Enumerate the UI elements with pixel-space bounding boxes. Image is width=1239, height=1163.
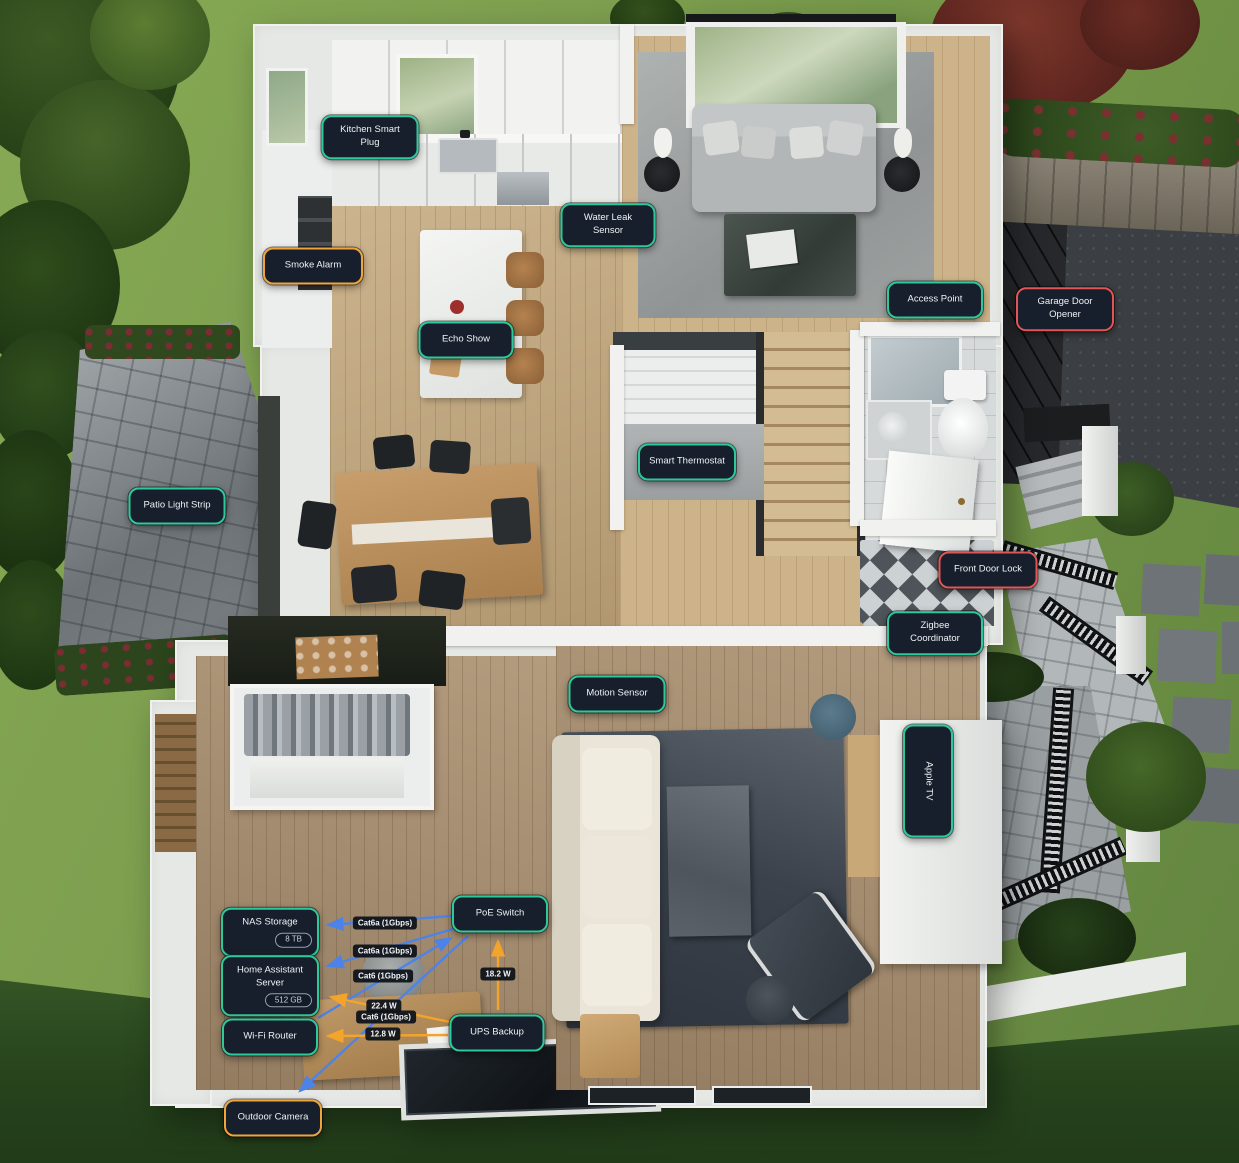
device-label-text: PoE Switch bbox=[476, 908, 525, 921]
connection-label: Cat6a (1Gbps) bbox=[353, 917, 417, 930]
device-label-nas-storage[interactable]: NAS Storage 8 TB bbox=[221, 908, 319, 957]
device-label-text: Smart Thermostat bbox=[649, 456, 725, 469]
device-label-text: Zigbee Coordinator bbox=[895, 620, 975, 646]
device-label-water-leak-sensor[interactable]: Water Leak Sensor bbox=[561, 203, 656, 247]
storage-capacity-badge: 512 GB bbox=[265, 993, 312, 1008]
device-label-smart-thermostat[interactable]: Smart Thermostat bbox=[638, 444, 736, 481]
device-label-text: Echo Show bbox=[442, 334, 490, 347]
device-label-text: Front Door Lock bbox=[954, 564, 1022, 577]
device-label-front-door-lock[interactable]: Front Door Lock bbox=[939, 552, 1038, 589]
device-label-motion-sensor[interactable]: Motion Sensor bbox=[569, 676, 666, 713]
device-label-text: Apple TV bbox=[922, 762, 935, 801]
connection-label: Cat6 (1Gbps) bbox=[353, 970, 413, 983]
device-label-zigbee-coordinator[interactable]: Zigbee Coordinator bbox=[887, 611, 983, 655]
device-label-text: UPS Backup bbox=[470, 1027, 524, 1040]
device-label-garage-door-opener[interactable]: Garage Door Opener bbox=[1016, 287, 1114, 331]
device-label-text: Wi-Fi Router bbox=[243, 1031, 296, 1044]
network-connections bbox=[0, 0, 1239, 1163]
connection-label: 12.8 W bbox=[365, 1028, 400, 1041]
device-label-text: Smoke Alarm bbox=[285, 260, 342, 273]
device-label-text: Access Point bbox=[908, 294, 963, 307]
device-label-text: Patio Light Strip bbox=[143, 500, 210, 513]
device-label-home-assistant-server[interactable]: Home Assistant Server 512 GB bbox=[221, 955, 319, 1016]
device-label-text: Outdoor Camera bbox=[238, 1112, 309, 1125]
device-label-text: Kitchen Smart Plug bbox=[330, 124, 411, 150]
device-label-poe-switch[interactable]: PoE Switch bbox=[452, 896, 548, 933]
device-label-kitchen-smart-plug[interactable]: Kitchen Smart Plug bbox=[322, 115, 419, 159]
device-label-outdoor-camera[interactable]: Outdoor Camera bbox=[224, 1100, 322, 1137]
device-label-text: Garage Door Opener bbox=[1024, 296, 1106, 322]
device-label-access-point[interactable]: Access Point bbox=[887, 282, 983, 319]
device-label-patio-light-strip[interactable]: Patio Light Strip bbox=[129, 488, 226, 525]
device-label-text: Home Assistant Server bbox=[229, 964, 311, 990]
storage-capacity-badge: 8 TB bbox=[275, 933, 312, 948]
device-label-text: NAS Storage bbox=[242, 917, 297, 930]
device-label-echo-show[interactable]: Echo Show bbox=[419, 322, 514, 359]
device-label-text: Water Leak Sensor bbox=[569, 212, 648, 238]
device-label-ups-backup[interactable]: UPS Backup bbox=[450, 1015, 545, 1052]
connection-label: 18.2 W bbox=[480, 968, 515, 981]
device-label-apple-tv[interactable]: Apple TV bbox=[903, 725, 953, 838]
connection-label: Cat6 (1Gbps) bbox=[356, 1011, 416, 1024]
connection-label: Cat6a (1Gbps) bbox=[353, 945, 417, 958]
device-label-text: Motion Sensor bbox=[586, 688, 647, 701]
device-label-wifi-router[interactable]: Wi-Fi Router bbox=[222, 1019, 318, 1056]
device-label-smoke-alarm[interactable]: Smoke Alarm bbox=[263, 248, 363, 285]
floor-plan: Cat6a (1Gbps) Cat6a (1Gbps) Cat6 (1Gbps)… bbox=[0, 0, 1239, 1163]
